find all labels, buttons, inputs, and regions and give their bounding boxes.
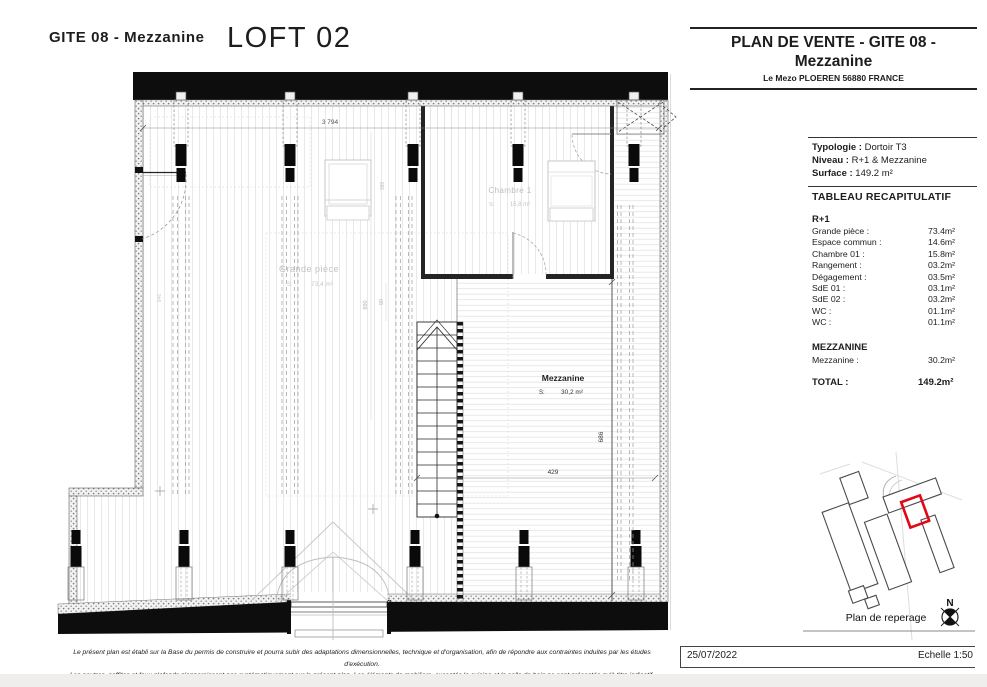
footer-rule-top [680,646,975,647]
room-s-label: S: [287,282,293,288]
row-value: 03.1m² [928,283,955,294]
stair-start-dot [435,514,440,519]
row-label: WC : [812,306,831,316]
recap-table: Grande pièce :73.4m² Espace commun :14.6… [812,226,977,329]
typology-line: Typologie : Dortoir T3 [812,141,927,154]
room-area-grande-piece: 73,4 m² [311,281,334,288]
total-value: 149.2m² [918,377,953,388]
room-s-label: S: [539,390,545,396]
sheet-title: PLAN DE VENTE - GITE 08 - Mezzanine [690,33,977,71]
table-row: WC :01.1m² [812,317,977,328]
table-row: SdE 01 :03.1m² [812,283,977,294]
room-label-mezzanine: Mezzanine [542,373,585,383]
table-row: SdE 02 :03.2m² [812,294,977,305]
scale-value: Echelle 1:50 [680,650,973,661]
dim-846: 846 [157,294,163,303]
typology-rule-top [808,137,977,138]
table-row: Mezzanine :30.2m² [812,355,977,365]
total-row: TOTAL :149.2m² [812,377,977,388]
floor-plan: 3 794 429 686 890 90 388 846 Grande pièc… [58,72,676,640]
plan-sheet: 3 794 429 686 890 90 388 846 Grande pièc… [0,0,987,687]
dim-388: 388 [380,182,386,191]
floor-corridor [615,106,660,279]
surface-value: 149.2 m² [855,168,893,179]
row-value: 01.1m² [928,306,955,317]
room-area-chambre: 15,8 m² [510,202,530,208]
room-label-chambre: Chambre 1 [488,186,531,195]
title-rule-top [690,27,977,29]
total-label: TOTAL : [812,377,848,388]
row-label: Espace commun : [812,237,882,247]
row-label: Dégagement : [812,272,867,282]
recap-table-title: TABLEAU RECAPITULATIF [812,191,951,203]
entrance-opening [287,592,391,638]
dim-mezz-height: 686 [598,431,605,442]
typology-label: Typologie : [812,142,862,153]
typology-value: Dortoir T3 [865,142,907,153]
surface-label: Surface : [812,168,853,179]
row-value: 73.4m² [928,226,955,237]
recap-section-r1: R+1 [812,214,830,225]
top-wall-hatch [143,100,660,106]
typology-rule-bottom [808,186,977,187]
table-row: WC :01.1m² [812,306,977,317]
floor-notch [77,496,143,603]
row-label: Grande pièce : [812,226,869,236]
row-value: 03.2m² [928,294,955,305]
right-wall [660,100,668,602]
row-value: 01.1m² [928,317,955,328]
surface-line: Surface : 149.2 m² [812,167,927,180]
sheet-title-line2: Mezzanine [690,52,977,71]
bed-chambre [548,161,595,221]
row-label: Chambre 01 : [812,249,865,259]
dim-mezz-width: 429 [548,469,559,476]
north-label: N [946,598,953,609]
disclaimer-line1: Le présent plan est établi sur la Base d… [62,647,662,670]
level-value: R+1 & Mezzanine [852,155,927,166]
level-label: Niveau : [812,155,849,166]
row-value: 30.2m² [928,355,955,365]
table-row: Dégagement :03.5m² [812,272,977,283]
site-plan-caption: Plan de reperage [846,612,927,624]
stair-void-edge [457,322,463,603]
north-compass-icon: N [941,598,959,626]
table-row: Chambre 01 :15.8m² [812,249,977,260]
table-row: Rangement :03.2m² [812,260,977,271]
title-rule-bottom [690,88,977,90]
row-value: 15.8m² [928,249,955,260]
row-label: Rangement : [812,260,862,270]
dim-90: 90 [379,299,385,305]
page-title-unit: LOFT 02 [227,22,351,55]
row-value: 14.6m² [928,237,955,248]
row-label: Mezzanine : [812,355,859,365]
room-area-mezzanine: 30,2 m² [561,389,584,396]
table-row: Espace commun :14.6m² [812,237,977,248]
table-row: Grande pièce :73.4m² [812,226,977,237]
row-value: 03.5m² [928,272,955,283]
recap-section-mezzanine: MEZZANINE [812,342,867,353]
project-ref: GITE 08 - Mezzanine [49,29,205,46]
sheet-title-line1: PLAN DE VENTE - GITE 08 - [690,33,977,52]
footer-rule-bottom [680,667,975,668]
left-wall [135,100,143,488]
room-label-grande-piece: Grande pièce [279,264,339,274]
dim-890: 890 [363,300,369,309]
typology-block: Typologie : Dortoir T3 Niveau : R+1 & Me… [812,141,927,180]
top-wall [133,72,668,100]
dim-width-top: 3 794 [322,119,339,126]
site-plan: Plan de reperage N [803,452,975,640]
furniture-grande-piece [325,160,371,220]
row-label: SdE 01 : [812,283,845,293]
left-wall-step [69,488,143,496]
row-label: WC : [812,317,831,327]
row-label: SdE 02 : [812,294,845,304]
bottom-gray-strip [0,674,987,687]
level-line: Niveau : R+1 & Mezzanine [812,154,927,167]
sheet-address: Le Mezo PLOEREN 56880 FRANCE [690,73,977,83]
room-s-label: S: [489,202,495,208]
site-buildings [822,471,954,608]
row-value: 03.2m² [928,260,955,271]
